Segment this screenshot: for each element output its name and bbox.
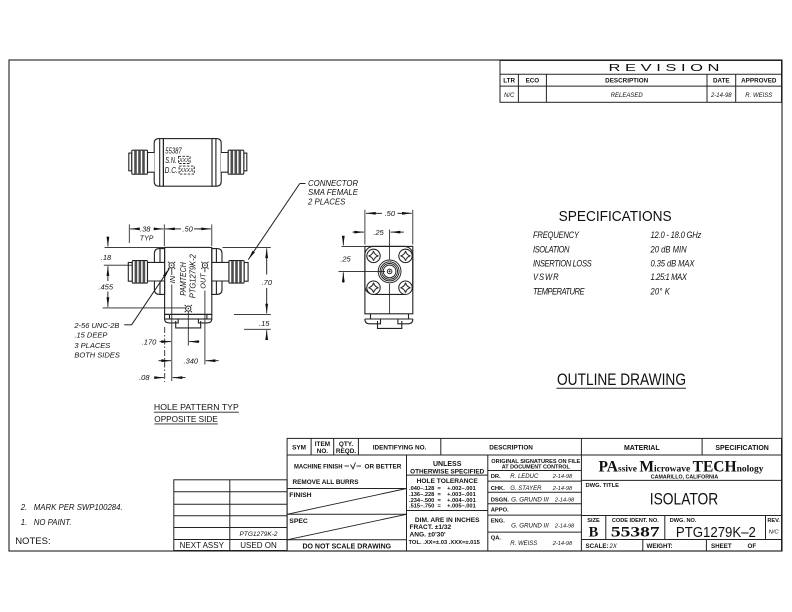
svg-text:PTG1279K-2: PTG1279K-2 [240, 531, 278, 538]
svg-text:.15 DEEP: .15 DEEP [74, 330, 107, 339]
svg-text:G. STAYER: G. STAYER [510, 486, 542, 492]
svg-text:.08: .08 [139, 373, 150, 382]
svg-text:1.25:1 MAX: 1.25:1 MAX [651, 271, 688, 282]
svg-text:DESCRIPTION: DESCRIPTION [605, 78, 648, 85]
svg-text:.38: .38 [140, 225, 151, 234]
svg-text:SPECIFICATION: SPECIFICATION [715, 445, 769, 452]
svg-text:OTHERWISE SPECIFIED: OTHERWISE SPECIFIED [410, 468, 484, 475]
svg-text:2-14-98: 2-14-98 [552, 541, 573, 547]
svg-text:ECO: ECO [526, 78, 540, 85]
svg-text:QA.: QA. [491, 536, 502, 542]
svg-text:OF: OF [748, 543, 757, 550]
svg-text:.15: .15 [259, 319, 270, 328]
svg-text:20 dB MIN: 20 dB MIN [650, 243, 688, 254]
svg-text:MACHINE FINISH: MACHINE FINISH [294, 464, 343, 471]
svg-text:2-14-98: 2-14-98 [552, 486, 573, 492]
svg-text:55387: 55387 [611, 525, 660, 541]
svg-text:OR BETTER: OR BETTER [365, 464, 402, 471]
svg-text:.50: .50 [385, 209, 396, 218]
svg-text:DO NOT SCALE DRAWING: DO NOT SCALE DRAWING [302, 544, 391, 551]
svg-text:D.C.: D.C. [165, 166, 178, 175]
svg-text:G. GRUND III: G. GRUND III [511, 498, 549, 504]
svg-text:FRACT. ±1/32: FRACT. ±1/32 [410, 524, 452, 531]
svg-text:R. WEISS: R. WEISS [510, 541, 537, 547]
svg-text:NOTES:: NOTES: [15, 536, 50, 547]
svg-text:RELEASED: RELEASED [611, 93, 644, 99]
svg-text:WEIGHT:: WEIGHT: [647, 543, 673, 550]
svg-text:TEMPERATURE: TEMPERATURE [533, 286, 585, 297]
svg-text:NO.: NO. [317, 448, 329, 455]
svg-text:G. GRUND III: G. GRUND III [511, 524, 549, 530]
svg-text:.18: .18 [101, 253, 112, 262]
svg-text:PAMTECH: PAMTECH [179, 262, 188, 296]
svg-text:.25: .25 [340, 254, 351, 263]
svg-text:B: B [589, 525, 599, 541]
svg-text:BOTH SIDES: BOTH SIDES [74, 350, 119, 359]
svg-text:ISOLATOR: ISOLATOR [650, 491, 719, 509]
svg-text:TYP: TYP [140, 236, 154, 243]
svg-text:INSERTION LOSS: INSERTION LOSS [533, 258, 592, 269]
svg-text:SYM: SYM [292, 445, 306, 452]
svg-text:3 PLACES: 3 PLACES [74, 341, 110, 350]
svg-text:CODE IDENT. NO.: CODE IDENT. NO. [612, 518, 659, 524]
svg-text:20° K: 20° K [650, 286, 671, 297]
svg-text:SMA FEMALE: SMA FEMALE [308, 188, 359, 197]
svg-text:.455: .455 [98, 283, 113, 292]
svg-text:SIZE: SIZE [587, 518, 600, 524]
svg-text:2X: 2X [609, 544, 618, 550]
svg-text:DESCRIPTION: DESCRIPTION [489, 445, 533, 452]
svg-text:OUTLINE DRAWING: OUTLINE DRAWING [557, 370, 686, 389]
svg-text:1. NO PAINT.: 1. NO PAINT. [21, 518, 72, 527]
svg-text:TOL. .XX=±.03 .XXX=±.015: TOL. .XX=±.03 .XXX=±.015 [409, 540, 481, 546]
svg-text:REQD.: REQD. [336, 448, 356, 455]
svg-text:LTR: LTR [503, 78, 515, 85]
svg-text:CHK.: CHK. [491, 486, 506, 492]
svg-text:DSGN.: DSGN. [491, 498, 510, 504]
svg-text:.50: .50 [182, 225, 193, 234]
svg-text:DIM. ARE IN INCHES: DIM. ARE IN INCHES [415, 517, 480, 524]
svg-text:QTY.: QTY. [339, 441, 353, 448]
svg-text:IDENTIFYING NO.: IDENTIFYING NO. [373, 445, 427, 452]
svg-text:2-14-98: 2-14-98 [552, 474, 573, 480]
svg-text:PTG1279K–2: PTG1279K–2 [676, 525, 756, 541]
svg-text:ANG. ±0'30': ANG. ±0'30' [410, 532, 447, 539]
svg-text:S.N.: S.N. [165, 156, 176, 165]
svg-text:2. MARK PER SWP100284.: 2. MARK PER SWP100284. [20, 503, 123, 512]
svg-text:FREQUENCY: FREQUENCY [533, 229, 580, 240]
svg-text:CONNECTOR: CONNECTOR [308, 179, 358, 188]
svg-text:REMOVE ALL BURRS: REMOVE ALL BURRS [293, 479, 360, 486]
svg-text:N/C: N/C [769, 530, 780, 536]
svg-text:.170: .170 [142, 337, 157, 346]
svg-text:.340: .340 [183, 356, 198, 365]
svg-text:DATE: DATE [713, 78, 730, 85]
svg-text:2-56 UNC-2B: 2-56 UNC-2B [73, 321, 119, 330]
svg-text:OUT: OUT [199, 272, 208, 289]
svg-text:APPO.: APPO. [491, 507, 509, 513]
svg-text:R E V I S I O N: R E V I S I O N [609, 62, 720, 74]
svg-text:REV.: REV. [767, 518, 780, 524]
svg-text:OPPOSITE SIDE: OPPOSITE SIDE [154, 414, 218, 424]
svg-text:12.0 - 18.0 GHz: 12.0 - 18.0 GHz [651, 229, 702, 240]
svg-text:DWG. TITLE: DWG. TITLE [586, 483, 620, 489]
svg-text:2 PLACES: 2 PLACES [307, 197, 346, 206]
svg-text:.25: .25 [373, 228, 384, 237]
svg-text:N/C: N/C [504, 93, 515, 99]
svg-text:XXX: XXX [178, 158, 190, 164]
svg-text:.515–.750 = +.005–.001: .515–.750 = +.005–.001 [409, 504, 476, 510]
svg-text:2-14-98: 2-14-98 [554, 524, 575, 530]
svg-text:ENG.: ENG. [491, 518, 506, 524]
svg-text:NEXT ASSY: NEXT ASSY [180, 541, 225, 550]
svg-text:IN: IN [168, 275, 177, 283]
svg-text:FINISH: FINISH [289, 492, 311, 499]
svg-text:PTG1279K-2: PTG1279K-2 [189, 254, 198, 299]
svg-text:55387: 55387 [165, 147, 182, 156]
svg-text:2-14-98: 2-14-98 [710, 93, 732, 99]
svg-text:0.35 dB MAX: 0.35 dB MAX [651, 258, 695, 269]
svg-text:.70: .70 [262, 278, 273, 287]
svg-text:VSWR: VSWR [533, 271, 559, 282]
svg-text:USED ON: USED ON [240, 541, 277, 550]
svg-text:R. WEISS: R. WEISS [745, 93, 772, 99]
svg-text:HOLE TOLERANCE: HOLE TOLERANCE [417, 478, 479, 485]
svg-text:DWG. NO.: DWG. NO. [670, 518, 697, 524]
svg-text:SPEC: SPEC [289, 518, 308, 525]
svg-text:R. LEDUC: R. LEDUC [510, 474, 539, 480]
svg-text:SHEET: SHEET [711, 543, 732, 550]
svg-text:AT DOCUMENT CONTROL: AT DOCUMENT CONTROL [502, 464, 571, 470]
svg-text:ITEM: ITEM [315, 441, 330, 448]
svg-text:DR.: DR. [491, 474, 501, 480]
svg-text:XXXX: XXXX [179, 168, 194, 174]
svg-text:HOLE PATTERN TYP: HOLE PATTERN TYP [154, 402, 239, 412]
svg-text:APPROVED: APPROVED [741, 78, 777, 85]
svg-text:SCALE:: SCALE: [586, 543, 609, 550]
svg-text:ISOLATION: ISOLATION [533, 243, 570, 254]
svg-text:SPECIFICATIONS: SPECIFICATIONS [559, 209, 672, 225]
svg-text:MATERIAL: MATERIAL [624, 445, 660, 452]
svg-text:2-14-98: 2-14-98 [554, 498, 575, 504]
svg-text:CAMARILLO, CALIFORNIA: CAMARILLO, CALIFORNIA [651, 474, 719, 480]
svg-text:UNLESS: UNLESS [433, 461, 462, 468]
